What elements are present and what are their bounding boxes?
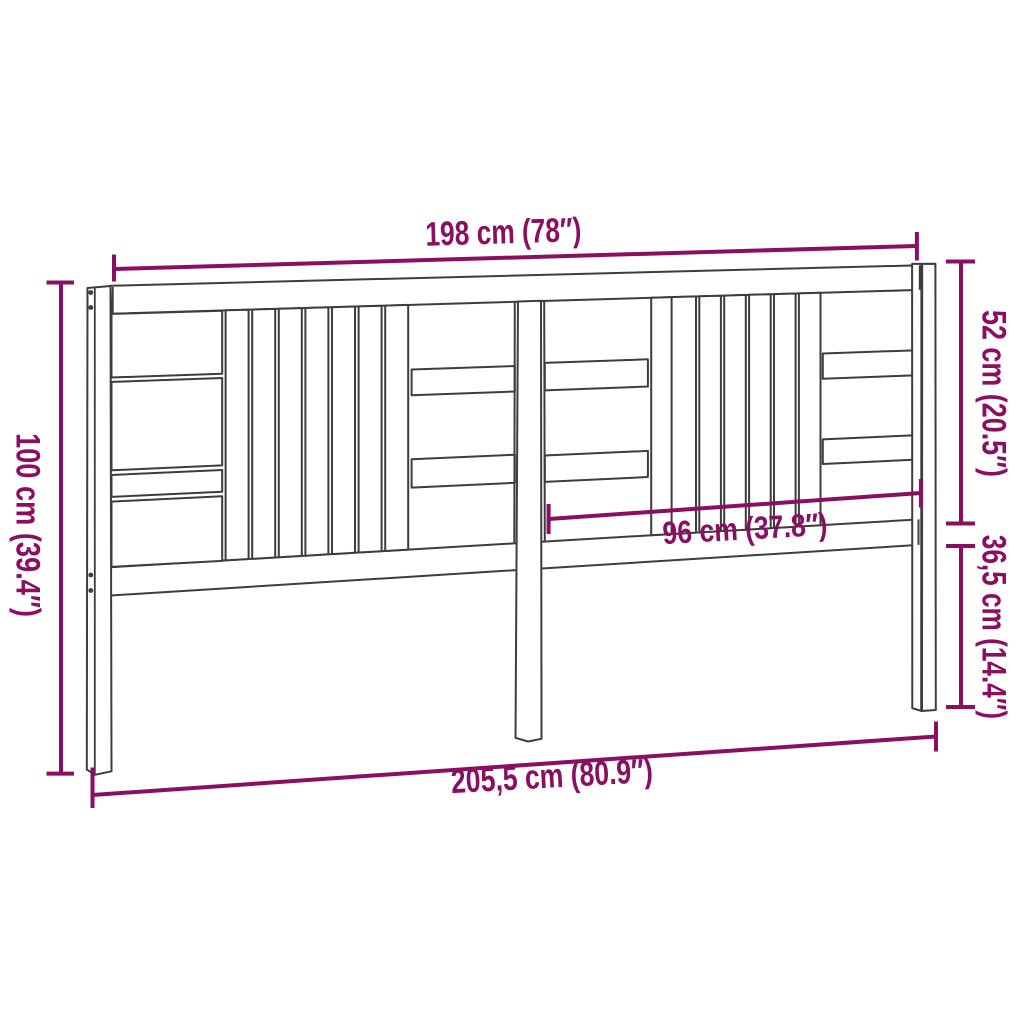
svg-text:205,5 cm (80.9″): 205,5 cm (80.9″) [450, 752, 654, 801]
svg-text:198 cm (78″): 198 cm (78″) [425, 211, 582, 254]
svg-text:52 cm (20.5″): 52 cm (20.5″) [975, 310, 1013, 477]
svg-text:36,5 cm (14.4″): 36,5 cm (14.4″) [975, 535, 1013, 719]
svg-text:100 cm (39.4″): 100 cm (39.4″) [9, 433, 47, 617]
